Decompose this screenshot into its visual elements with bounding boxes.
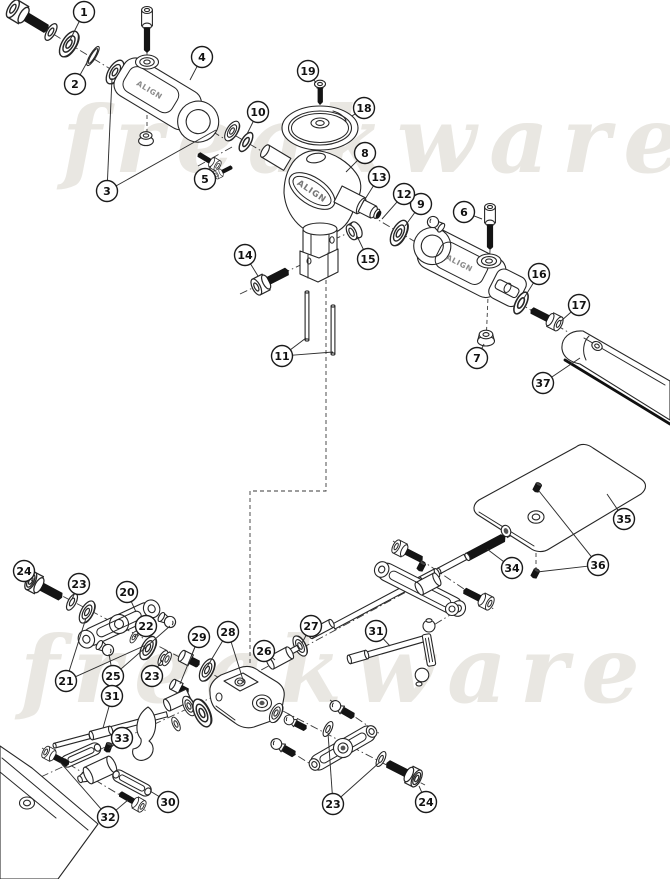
callout-number: 6 xyxy=(460,206,468,219)
callout-leader xyxy=(116,800,128,810)
callout-number: 9 xyxy=(417,198,425,211)
part-head-button-disc xyxy=(282,106,358,150)
part-bolt-14 xyxy=(249,263,292,297)
callout-leader xyxy=(382,202,397,219)
diagram-canvas: freakware freakware xyxy=(0,0,670,879)
callout-leader xyxy=(150,791,159,797)
part-shim-washer xyxy=(85,45,101,67)
callout-26: 26 xyxy=(254,641,276,662)
part-feathering-pin xyxy=(305,291,309,341)
callout-number: 27 xyxy=(303,620,318,633)
part-main-blade xyxy=(562,331,670,424)
callout-4: 4 xyxy=(190,47,213,81)
callout-number: 25 xyxy=(105,670,120,683)
callout-number: 35 xyxy=(616,513,631,526)
part-flybar-paddle-left xyxy=(0,746,98,879)
callout-leader xyxy=(487,549,504,562)
callout-number: 26 xyxy=(256,645,272,658)
callout-number: 4 xyxy=(198,51,206,64)
part-feathering-pin xyxy=(331,305,335,355)
callout-number: 12 xyxy=(396,188,411,201)
callout-number: 19 xyxy=(300,65,315,78)
callout-number: 20 xyxy=(119,586,135,599)
callout-14: 14 xyxy=(235,245,259,277)
callout-37: 37 xyxy=(533,358,581,394)
part-ball-screw xyxy=(269,737,298,760)
callout-leader xyxy=(290,338,306,350)
callout-number: 23 xyxy=(325,798,340,811)
callout-number: 33 xyxy=(114,732,129,745)
callout-number: 24 xyxy=(16,565,32,578)
part-grip-bolt-6 xyxy=(485,204,496,250)
callout-20: 20 xyxy=(117,582,138,613)
callout-15: 15 xyxy=(357,236,379,270)
callout-number: 18 xyxy=(356,102,371,115)
callout-6: 6 xyxy=(454,202,483,223)
callout-leader xyxy=(341,762,380,797)
callout-number: 10 xyxy=(250,106,266,119)
callout-number: 30 xyxy=(160,796,176,809)
callout-number: 2 xyxy=(71,78,79,91)
callout-leader xyxy=(474,216,482,219)
callout-number: 31 xyxy=(368,625,383,638)
callout-number: 7 xyxy=(473,352,481,365)
part-lock-nut xyxy=(139,132,154,146)
part-flybar-threaded-end xyxy=(464,533,507,561)
callout-number: 23 xyxy=(71,578,86,591)
callout-number: 21 xyxy=(58,675,73,688)
callout-30: 30 xyxy=(150,791,179,813)
callout-number: 13 xyxy=(371,171,386,184)
callout-leader xyxy=(251,264,258,276)
callout-leader xyxy=(190,66,197,80)
callout-number: 3 xyxy=(103,185,111,198)
callout-number: 37 xyxy=(535,377,550,390)
callout-7: 7 xyxy=(467,344,488,369)
part-hex-mount-block xyxy=(300,223,338,282)
exploded-view-svg: freakware freakware xyxy=(0,0,670,879)
callout-24: 24 xyxy=(416,786,437,813)
part-screw-17 xyxy=(528,303,565,332)
callout-number: 15 xyxy=(360,253,375,266)
callout-leader xyxy=(537,566,588,572)
callout-number: 11 xyxy=(274,350,289,363)
callout-number: 14 xyxy=(237,249,253,262)
callout-leader xyxy=(419,786,422,792)
part-grip-bolt-vertical xyxy=(142,7,153,53)
callout-number: 28 xyxy=(220,626,235,639)
part-washer-23 xyxy=(64,592,79,612)
part-set-screw-36 xyxy=(530,568,540,579)
callout-17: 17 xyxy=(561,295,590,322)
callout-number: 5 xyxy=(201,173,209,186)
callout-number: 36 xyxy=(590,559,606,572)
part-bolt-24 xyxy=(383,755,425,789)
callout-number: 29 xyxy=(191,631,206,644)
callout-number: 23 xyxy=(144,670,159,683)
callout-number: 32 xyxy=(100,811,115,824)
callout-number: 24 xyxy=(418,796,434,809)
callout-34: 34 xyxy=(487,549,523,579)
callout-number: 31 xyxy=(104,690,119,703)
callout-leader xyxy=(292,352,333,355)
callout-number: 22 xyxy=(138,620,153,633)
callout-number: 17 xyxy=(571,299,586,312)
callout-number: 1 xyxy=(80,6,88,19)
part-lock-nut-7 xyxy=(478,330,495,346)
callout-24: 24 xyxy=(14,561,35,583)
callout-number: 16 xyxy=(531,268,547,281)
part-washout-arm xyxy=(111,768,154,798)
callout-11: 11 xyxy=(272,338,334,367)
callout-leader xyxy=(561,312,571,321)
callout-number: 8 xyxy=(361,147,369,160)
part-flybar-paddle-right xyxy=(417,444,645,586)
callout-19: 19 xyxy=(298,61,319,84)
callout-leader xyxy=(405,212,415,226)
callout-number: 34 xyxy=(504,562,520,575)
